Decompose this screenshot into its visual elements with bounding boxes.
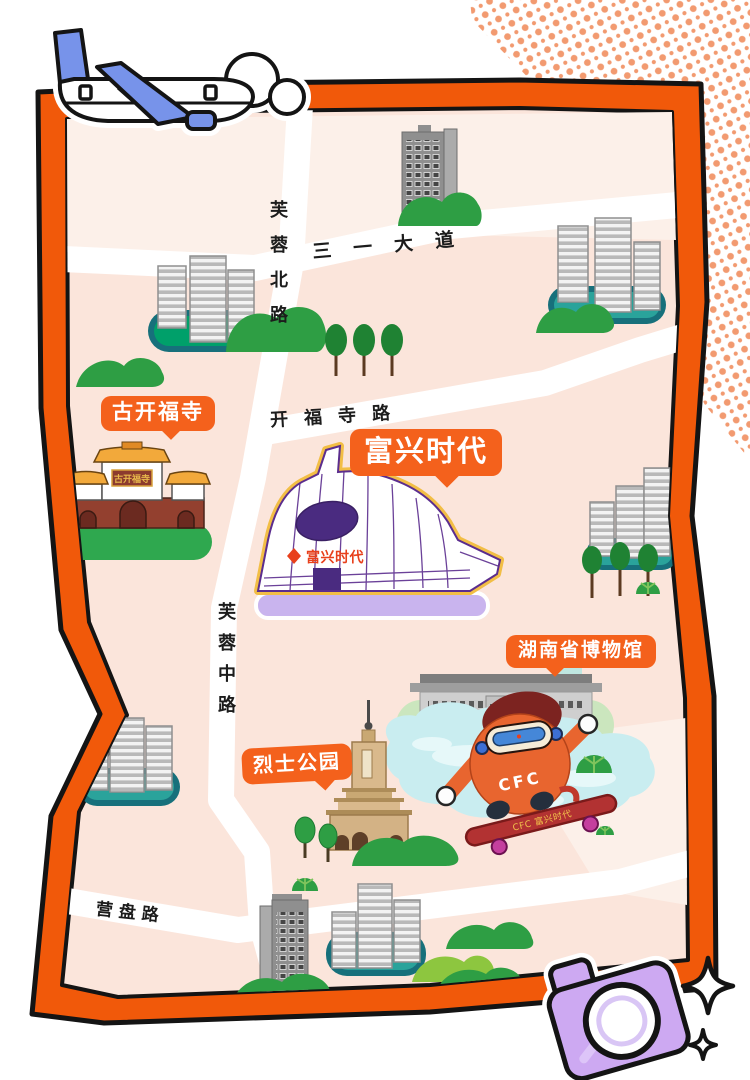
temple-plaque-text: 古开福寺 [114, 473, 150, 485]
bubble-label: 古开福寺 [112, 400, 204, 424]
bubble-label: 烈士公园 [252, 749, 341, 778]
mall-sign-text: 富兴时代 [306, 549, 364, 566]
mascot-paw [437, 787, 455, 805]
bubble-label: 湖南省博物馆 [518, 639, 644, 661]
bubble-martyrs-park: 烈士公园 [241, 743, 353, 785]
road-label-furong-middle: 芙蓉中路 [212, 602, 238, 726]
bubble-kaifu-temple: 古开福寺 [101, 396, 215, 431]
bubble-label: 富兴时代 [364, 434, 488, 468]
bubble-hunan-museum: 湖南省博物馆 [506, 635, 656, 668]
mascot-paw [579, 715, 597, 733]
trees-row [325, 324, 403, 376]
illustrated-map: 古开福寺 富兴时代 [0, 0, 750, 1080]
bubble-fuxing-times: 富兴时代 [350, 429, 502, 476]
cloud-icon [270, 80, 304, 114]
road-label-furong-north: 芙蓉北路 [264, 200, 290, 340]
